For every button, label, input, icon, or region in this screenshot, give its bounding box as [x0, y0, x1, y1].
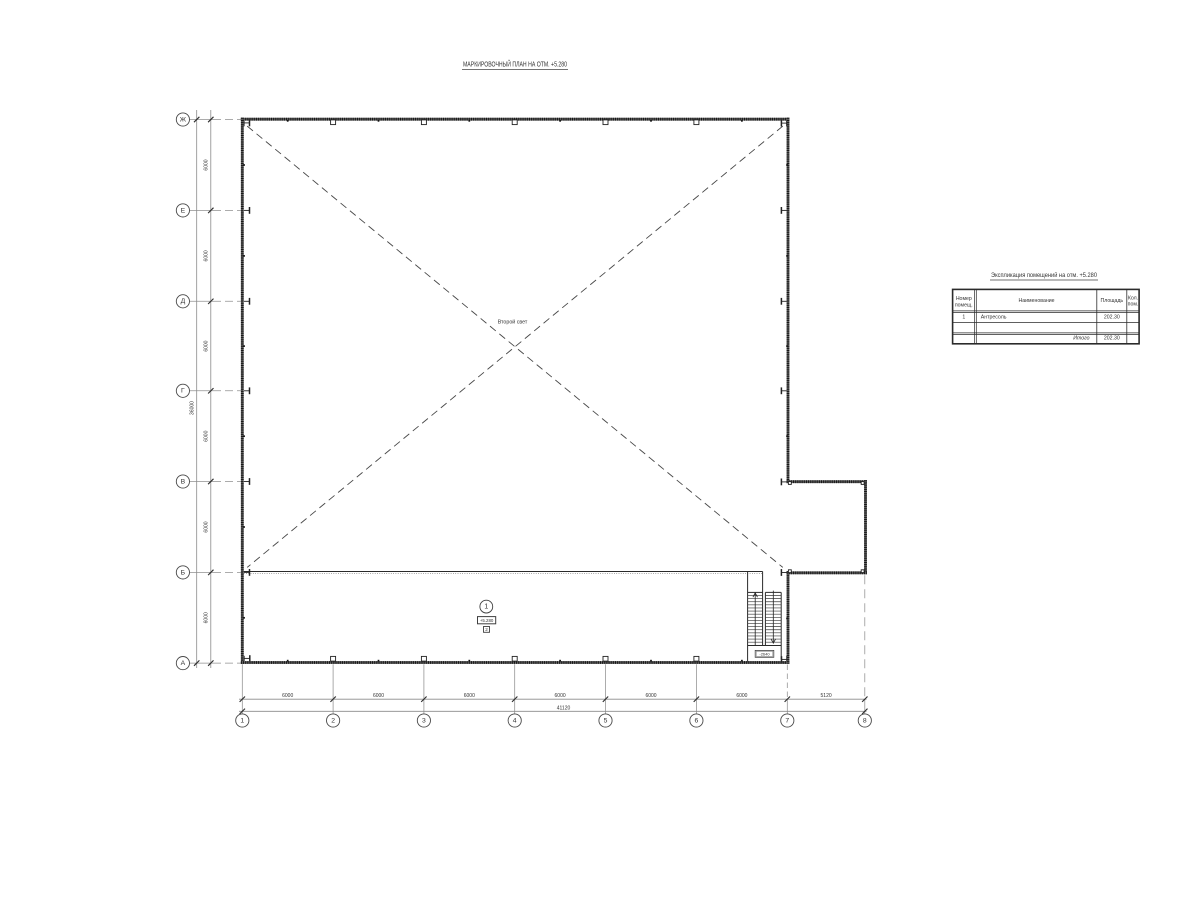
svg-text:202.30: 202.30: [1104, 315, 1120, 321]
svg-text:Г: Г: [181, 388, 185, 395]
svg-text:Площадь: Площадь: [1101, 298, 1124, 304]
svg-text:1: 1: [484, 604, 488, 611]
svg-text:6000: 6000: [204, 340, 210, 351]
svg-text:6000: 6000: [736, 693, 747, 699]
svg-text:-2640: -2640: [759, 652, 770, 657]
svg-text:1: 1: [962, 315, 965, 321]
svg-text:Е: Е: [181, 207, 186, 214]
svg-text:5: 5: [604, 717, 608, 724]
svg-text:3: 3: [422, 717, 426, 724]
svg-text:Номер: Номер: [956, 296, 972, 302]
svg-text:202.30: 202.30: [1104, 336, 1120, 342]
svg-text:2: 2: [331, 717, 335, 724]
svg-text:4: 4: [513, 717, 517, 724]
svg-text:8: 8: [863, 717, 867, 724]
svg-text:Ж: Ж: [180, 116, 187, 123]
svg-text:Второй свет: Второй свет: [498, 319, 528, 326]
svg-text:пом.: пом.: [1128, 302, 1139, 308]
svg-text:6000: 6000: [373, 693, 384, 699]
svg-text:6000: 6000: [204, 430, 210, 441]
svg-text:А: А: [181, 660, 186, 667]
svg-text:41120: 41120: [557, 705, 571, 711]
svg-text:36000: 36000: [190, 401, 196, 415]
svg-text:Д: Д: [181, 298, 186, 305]
svg-text:+5.280: +5.280: [480, 618, 494, 623]
svg-text:6: 6: [695, 717, 699, 724]
svg-text:6000: 6000: [464, 693, 475, 699]
svg-text:Наименование: Наименование: [1019, 298, 1055, 304]
svg-text:5120: 5120: [821, 693, 832, 699]
svg-text:Антресоль: Антресоль: [981, 315, 1007, 321]
svg-text:2: 2: [485, 627, 488, 632]
svg-text:Б: Б: [181, 569, 186, 576]
svg-text:МАРКИРОВОЧНЫЙ ПЛАН НА ОТМ. +5.: МАРКИРОВОЧНЫЙ ПЛАН НА ОТМ. +5.280: [463, 60, 567, 69]
svg-text:Кол.: Кол.: [1128, 295, 1138, 301]
svg-text:Итого: Итого: [1073, 336, 1089, 342]
svg-text:6000: 6000: [282, 693, 293, 699]
svg-text:6000: 6000: [204, 612, 210, 623]
svg-text:Экспликация помещений на отм.: Экспликация помещений на отм. +5.280: [991, 271, 1097, 279]
svg-text:6000: 6000: [204, 521, 210, 532]
svg-text:6000: 6000: [645, 693, 656, 699]
svg-text:6000: 6000: [204, 250, 210, 261]
svg-text:1: 1: [240, 717, 244, 724]
svg-text:помещ.: помещ.: [955, 302, 973, 308]
svg-text:6000: 6000: [204, 159, 210, 170]
svg-text:7: 7: [785, 717, 789, 724]
svg-text:В: В: [181, 478, 186, 485]
svg-text:6000: 6000: [555, 693, 566, 699]
